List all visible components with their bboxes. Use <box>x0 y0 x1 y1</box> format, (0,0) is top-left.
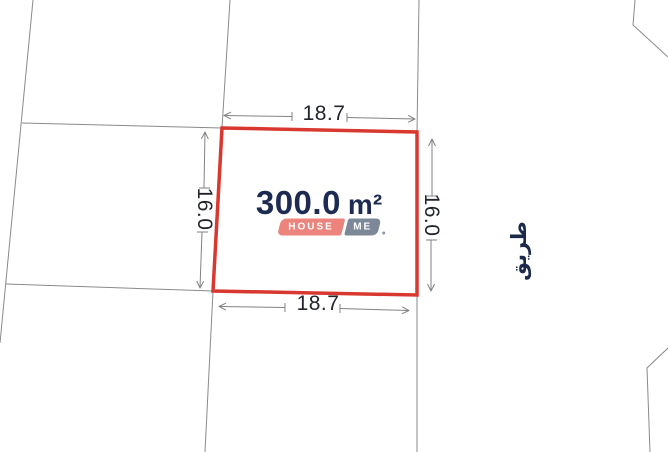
parcel-line <box>633 0 668 57</box>
dimension-arrow-bottom-left <box>219 307 285 308</box>
logo-me-text: ME <box>353 222 372 233</box>
logo-dot <box>382 232 385 235</box>
plot-area-unit: m² <box>348 189 382 221</box>
plot-map-canvas: 18.7 18.7 16.0 16.0 300.0 m² HOUSE ME طر… <box>0 0 668 452</box>
dimension-arrow-bottom-right <box>340 309 409 311</box>
parcel-line <box>222 0 230 128</box>
parcel-line <box>0 0 33 343</box>
logo-me-tag: ME <box>344 219 381 236</box>
parcel-line <box>22 123 222 128</box>
logo-house-text: HOUSE <box>288 222 334 233</box>
logo-house-tag: HOUSE <box>277 219 345 236</box>
dimension-label-bottom: 18.7 <box>297 292 340 316</box>
dimension-arrow-left-up <box>204 132 205 188</box>
parcel-line <box>205 291 213 452</box>
parcel-line <box>647 348 668 452</box>
dimension-label-right: 16.0 <box>419 194 443 237</box>
dimension-label-top: 18.7 <box>303 102 346 126</box>
dimension-arrow-top-right <box>347 118 415 120</box>
dimension-arrow-top-left <box>224 116 292 117</box>
parcel-line <box>417 0 419 132</box>
road-label: طريق <box>507 221 531 281</box>
dimension-label-left: 16.0 <box>192 188 216 231</box>
plot-area: 300.0 m² <box>256 184 382 222</box>
dimension-arrow-left-down <box>200 232 202 288</box>
plot-area-value: 300.0 <box>256 184 341 222</box>
houseme-logo: HOUSE ME <box>279 219 385 236</box>
parcel-line <box>6 284 213 291</box>
